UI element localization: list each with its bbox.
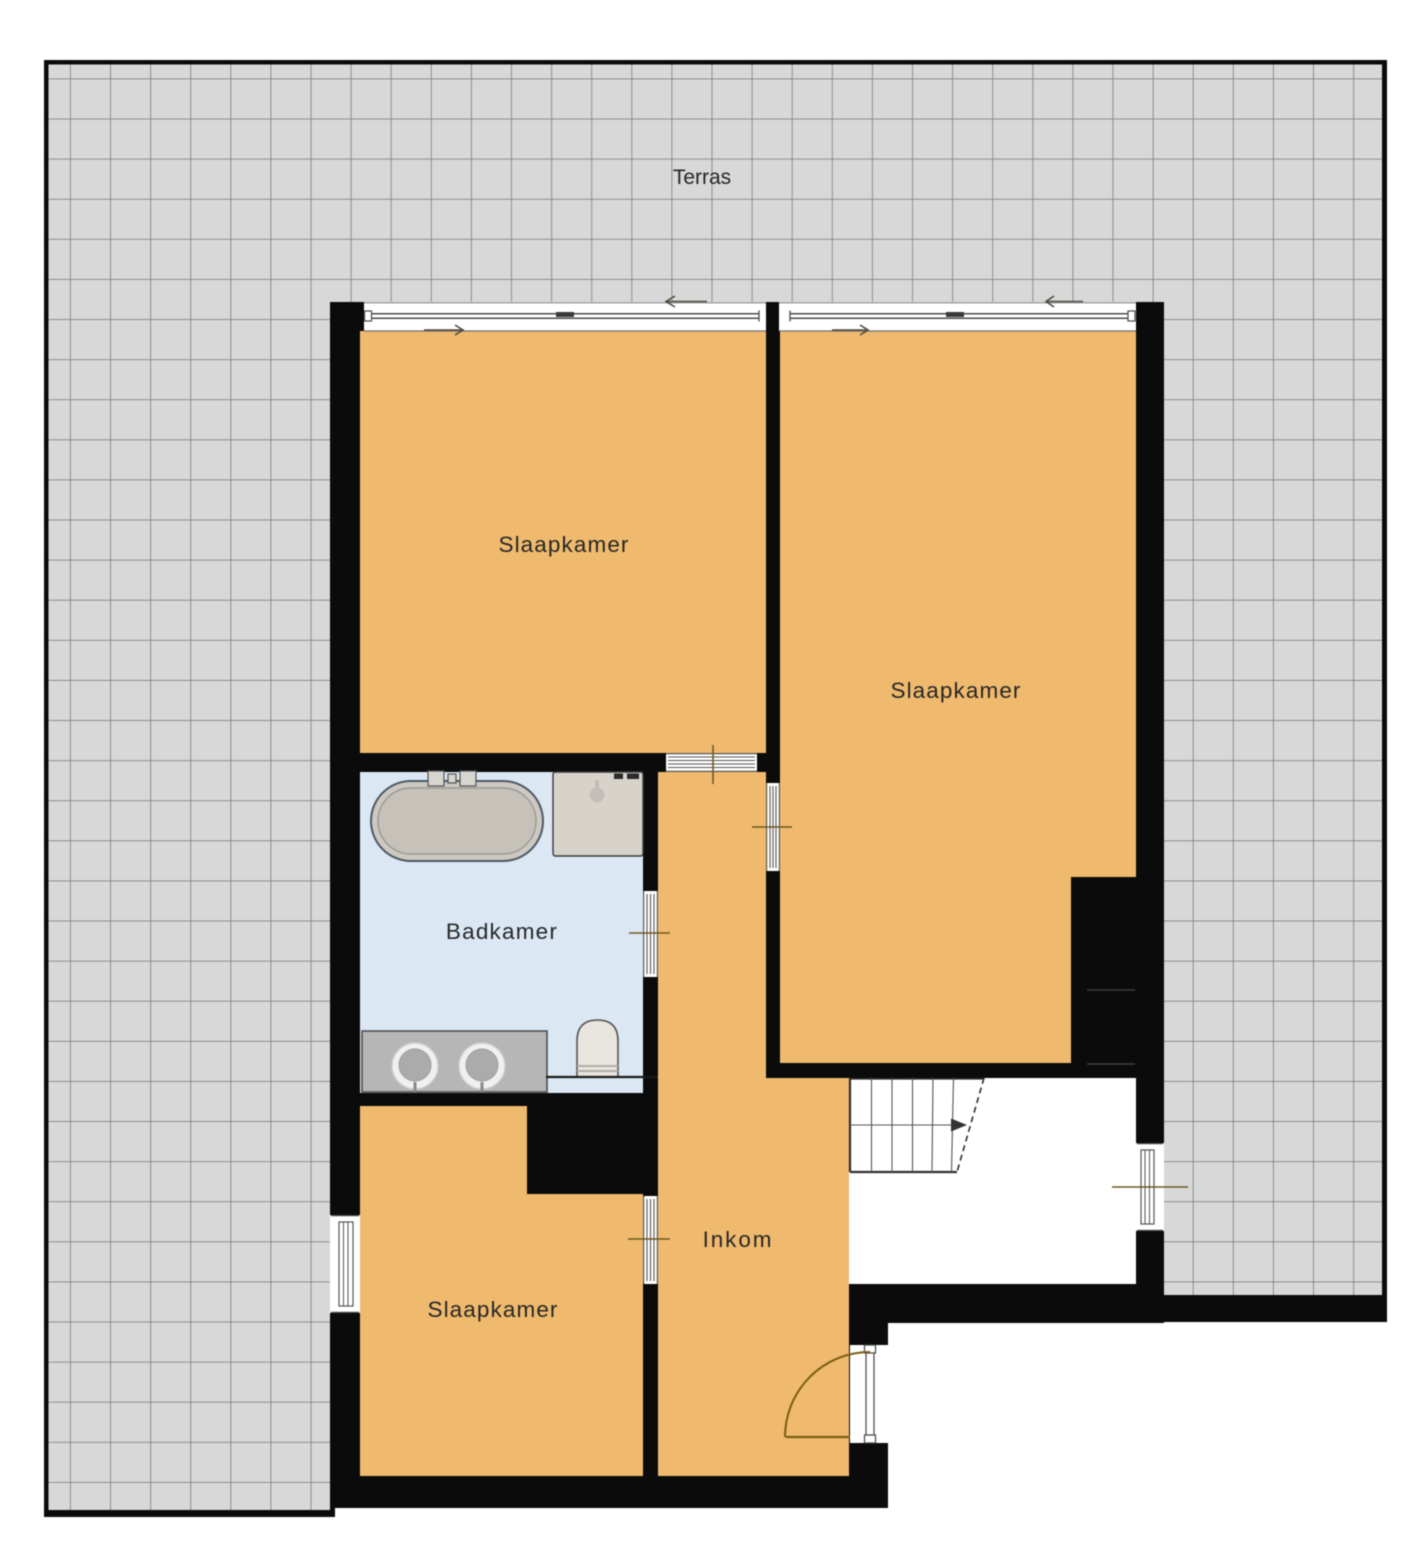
svg-text:Inkom: Inkom xyxy=(703,1227,774,1252)
svg-text:Slaapkamer: Slaapkamer xyxy=(498,532,629,557)
svg-text:Slaapkamer: Slaapkamer xyxy=(890,678,1021,703)
svg-text:Terras: Terras xyxy=(673,166,731,189)
svg-text:Badkamer: Badkamer xyxy=(446,919,558,944)
svg-text:Slaapkamer: Slaapkamer xyxy=(427,1297,558,1322)
